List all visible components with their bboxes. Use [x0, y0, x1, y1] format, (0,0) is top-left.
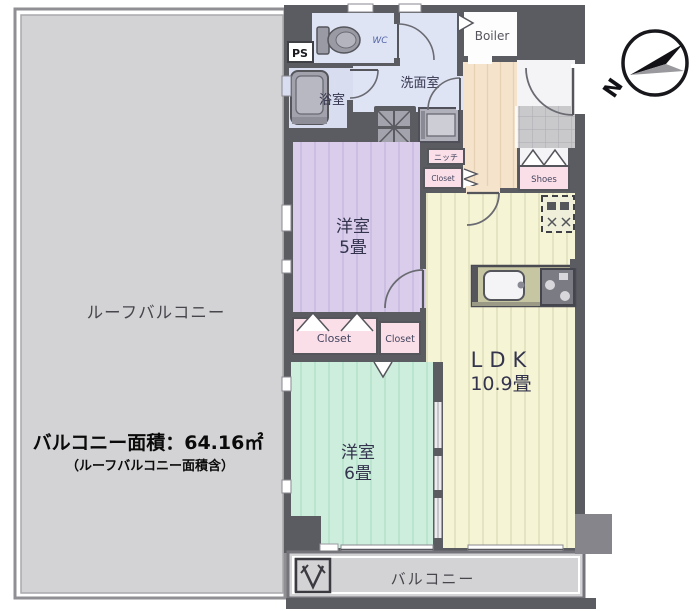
niche-label: ニッチ: [434, 153, 458, 162]
sliding-door-partition: [434, 402, 442, 538]
roof-balcony-label: ルーフバルコニー: [87, 303, 226, 322]
genkan-step-edge: [515, 106, 518, 148]
compass-north-label: N: [598, 74, 628, 102]
stove-icon: [541, 269, 574, 305]
corner-pillar: [575, 514, 612, 554]
hall-closet-label: Closet: [431, 174, 454, 183]
window-room6-a: [282, 377, 291, 391]
shoes-cabinet: Shoes: [519, 148, 569, 190]
room6-closet-label: Closet: [385, 334, 415, 345]
window-room5-a: [282, 205, 291, 231]
vanity-icon: [419, 108, 459, 142]
window-top-toilet: [348, 4, 373, 12]
room6-name: 洋室: [341, 443, 375, 463]
washroom-label: 洗面室: [400, 75, 439, 91]
balcony-area-note: （ルーフバルコニー面積含）: [66, 458, 234, 474]
room5-closet-label: Closet: [317, 332, 352, 345]
room6-size: 6畳: [344, 464, 372, 484]
room6-pillar: [291, 516, 321, 548]
toilet-icon: [317, 27, 360, 54]
floorplan-svg: ルーフバルコニー バルコニー面積：64.16㎡ （ルーフバルコニー面積含） WC…: [0, 0, 696, 611]
boiler-door-opening: [468, 54, 492, 64]
window-bath: [282, 76, 291, 96]
kitchen-sink-icon: [484, 271, 525, 300]
bath-door-opening: [347, 68, 353, 100]
window-room5-b: [282, 260, 291, 273]
bath-label: 浴室: [319, 92, 345, 108]
compass: N: [598, 31, 687, 102]
window-top-washroom: [399, 4, 421, 12]
boiler-label: Boiler: [475, 29, 510, 43]
room5-name: 洋室: [336, 217, 370, 237]
building-edge-bar: [286, 598, 596, 609]
balcony: バルコニー: [288, 552, 584, 598]
kitchen-counter: [472, 266, 575, 306]
roof-balcony: ルーフバルコニー バルコニー面積：64.16㎡ （ルーフバルコニー面積含）: [15, 9, 285, 598]
genkan-tile-area: [517, 106, 575, 148]
ps-label: PS: [292, 47, 308, 60]
entry-landing: [517, 60, 575, 106]
toilet-label: WC: [372, 36, 388, 46]
balcony-area-text: バルコニー面積：64.16㎡: [33, 431, 264, 454]
appliance-space-dashed: [542, 196, 574, 232]
hallway: [463, 62, 517, 188]
room5-size: 5畳: [339, 238, 367, 258]
balcony-label: バルコニー: [391, 570, 476, 588]
window-room6-b: [282, 480, 291, 493]
floorplan-image: ルーフバルコニー バルコニー面積：64.16㎡ （ルーフバルコニー面積含） WC…: [0, 0, 696, 611]
wall-nib: [570, 259, 585, 268]
shoes-label: Shoes: [531, 175, 557, 185]
ldk-name: LDK: [471, 348, 534, 372]
ldk-size: 10.9畳: [470, 373, 531, 395]
